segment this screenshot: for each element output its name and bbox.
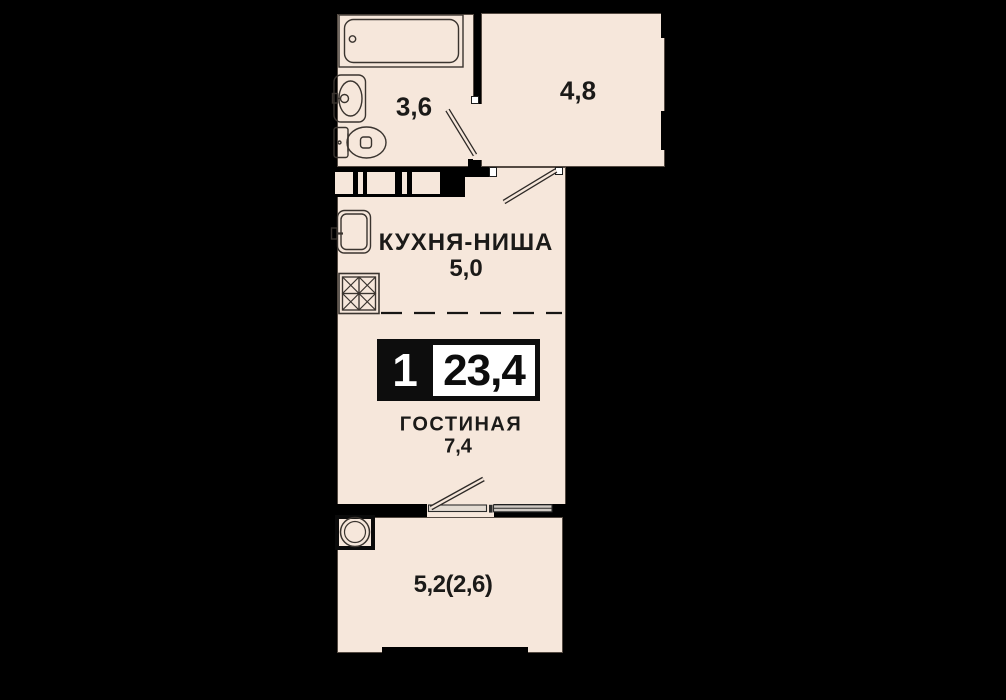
kitchen-area-label: 5,0 [449, 255, 482, 283]
balcony-frame-gap [487, 504, 494, 517]
floor-plan: 3,6 4,8 КУХНЯ-НИША 5,0 ГОСТИНАЯ 7,4 5,2(… [0, 0, 1006, 700]
balcony-parapet-step [382, 647, 528, 653]
duct-opening-icon [335, 172, 353, 194]
balcony-doorway [427, 504, 487, 517]
wall-hallway-edge-mid [661, 111, 665, 150]
hallway-area-label: 4,8 [560, 76, 596, 107]
bathroom-doorway [473, 104, 482, 160]
balcony-area-label: 5,2(2,6) [414, 571, 493, 599]
unit-total-area: 23,4 [433, 345, 535, 396]
wall-hallway-edge-top [661, 13, 665, 38]
duct-opening-icon [402, 172, 407, 194]
door-jamb [555, 167, 563, 175]
duct-opening-icon [367, 172, 395, 194]
duct-opening-icon [412, 172, 440, 194]
bathroom-area-label: 3,6 [396, 92, 432, 123]
wall-kitchen-doorway [465, 167, 490, 177]
duct-opening-icon [358, 172, 363, 194]
living-room-area-label: 7,4 [444, 436, 472, 459]
door-jamb [489, 167, 497, 177]
unit-info-badge: 1 23,4 [377, 339, 540, 401]
living-room-name-label: ГОСТИНАЯ [400, 414, 522, 437]
wall-bathroom-hallway [474, 13, 481, 104]
room-bathroom-floor [337, 14, 474, 167]
unit-rooms-count: 1 [377, 339, 433, 401]
kitchen-name-label: КУХНЯ-НИША [379, 229, 554, 257]
door-jamb [471, 96, 479, 104]
wall-door-stub [468, 159, 477, 168]
